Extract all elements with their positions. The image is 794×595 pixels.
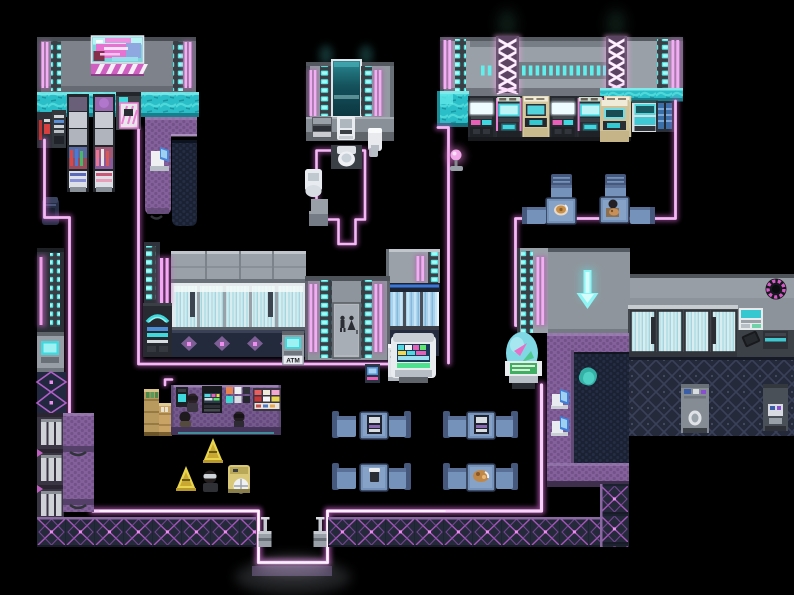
svg-text:ATM: ATM [286, 358, 300, 365]
